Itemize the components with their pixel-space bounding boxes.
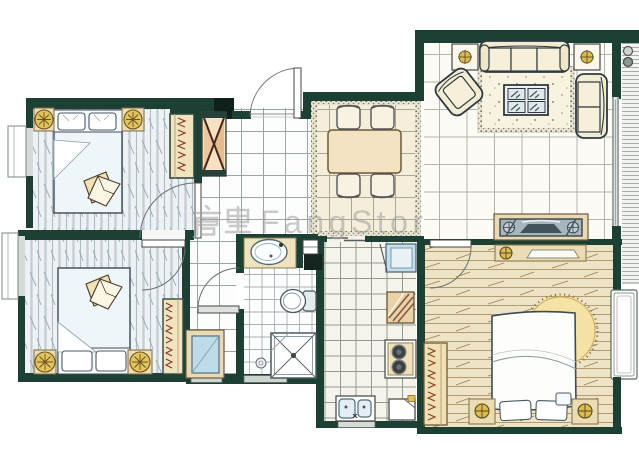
svg-text:FangStor: FangStor bbox=[260, 204, 428, 240]
